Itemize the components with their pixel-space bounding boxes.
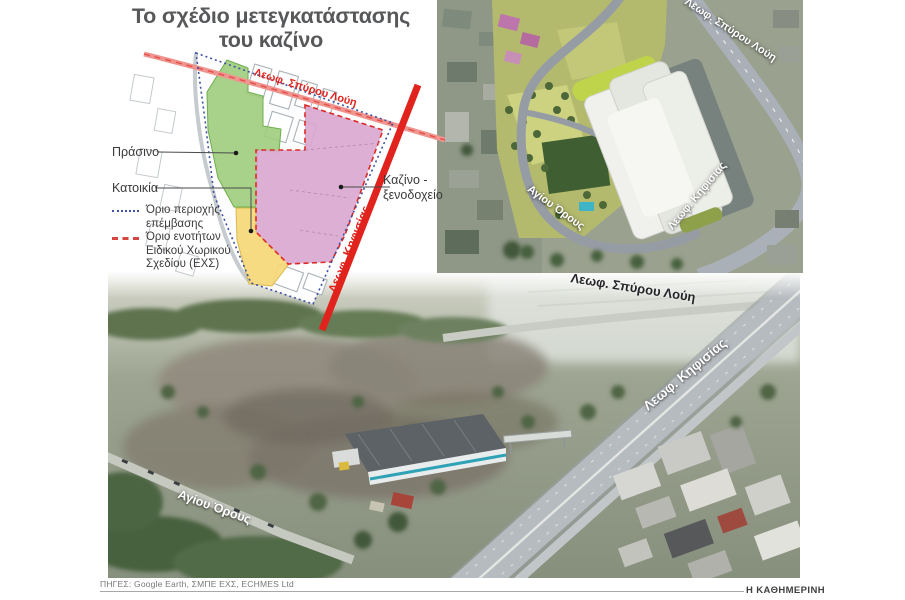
casino-label-line1: Καζίνο - (383, 173, 447, 188)
publisher-brand: Η ΚΑΘΗΜΕΡΙΝΗ (746, 585, 825, 596)
page-title-line1: Το σχέδιο μετεγκατάστασης (105, 4, 437, 28)
residential-zone-dot (249, 229, 254, 234)
page-title-line2: του καζίνο (105, 28, 437, 52)
casino-label-line2: ξενοδοχείο (383, 188, 447, 203)
legend-label-green: Πράσινο (112, 145, 159, 160)
legend-label-casino: Καζίνο - ξενοδοχείο (383, 173, 447, 203)
page-title: Το σχέδιο μετεγκατάστασης του καζίνο (105, 4, 437, 52)
render-inset: Λεωφ. Σπύρου Λούη Λεωφ. Κηφισίας Αγίου Ό… (437, 0, 803, 273)
casino-zone-dot (339, 185, 344, 190)
red-dashed-line-sample (112, 237, 139, 240)
infographic-canvas: Λεωφ. Σπύρου Λούη Λεωφ. Κηφισίας Αγίου Ό… (0, 0, 905, 600)
green-zone-dot (234, 151, 239, 156)
legend-label-intervention-boundary: Όριο περιοχής επέμβασης (146, 204, 232, 231)
legend-label-exs-boundary: Όριο ενοτήτων Ειδικού Χωρικού Σχεδίου (Ε… (146, 231, 246, 272)
legend-label-residential: Κατοικία (112, 181, 158, 196)
blue-dotted-line-sample (112, 210, 139, 212)
sources-text: ΠΗΓΕΣ: Google Earth, ΣΜΠΕ ΕΧΣ, ECHMES Lt… (100, 579, 294, 589)
footer-divider (100, 591, 744, 592)
